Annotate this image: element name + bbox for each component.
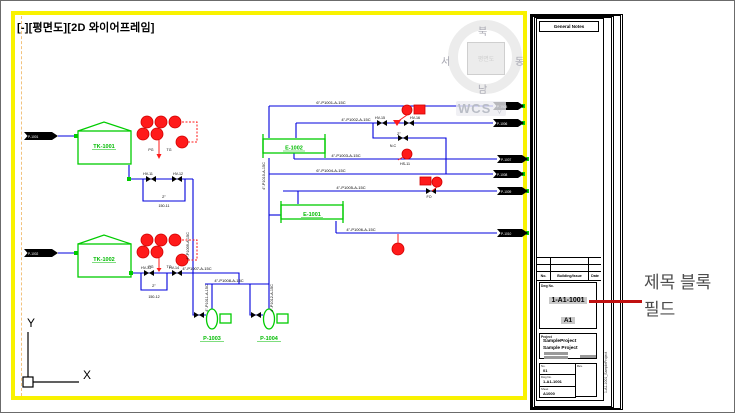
viewcube-north[interactable]: 북: [478, 23, 487, 38]
connector-out-5: P-1009: [501, 190, 512, 194]
pipe-tag: 4"-P1008-A-15C: [214, 278, 243, 283]
misc-tags: 150-11 150-12 FO N.C HS-11: [148, 144, 431, 299]
inst-tag: TG: [167, 148, 172, 152]
pipe-tag: 6"-P1001-A-15C: [316, 100, 345, 105]
inst-tag: PG: [148, 148, 153, 152]
instrument-symbols[interactable]: [137, 105, 442, 266]
pipe-tag: 4"-P1003-A-15C: [331, 153, 360, 158]
vessel2-tag: E-1001: [303, 212, 321, 218]
tank1-tag: TK-1001: [93, 144, 114, 150]
inst-tag: PG: [148, 265, 153, 269]
misc-tag: N.C: [390, 144, 397, 148]
size-tag: 2": [162, 194, 166, 199]
annotation-text: 제목 블록 필드: [644, 269, 711, 323]
connector-in-1: P-1001: [28, 135, 39, 139]
pipe-tag: 4"-P1002-A-15C: [341, 117, 370, 122]
viewcube-south[interactable]: 남: [478, 81, 487, 96]
annotation-line-1: 제목 블록: [644, 269, 711, 296]
ucs-y-label: Y: [27, 316, 35, 330]
pipe-tags: 6"-P1001-A-15C 4"-P1002-A-15C 4"-P1003-A…: [182, 100, 375, 312]
pipe-tag: 6"-P1004-A-15C: [316, 168, 345, 173]
pipe-tag: 4"-P1006-A-15C: [346, 227, 375, 232]
pipe-tag: 4"-P1005-A-15C: [336, 185, 365, 190]
valve-tag: HV-11: [143, 172, 153, 176]
viewport-controls-label[interactable]: [-][평면도][2D 와이어프레임]: [17, 19, 155, 35]
vessel1-tag: E-1002: [285, 146, 303, 152]
annotation-leader-line: [589, 300, 642, 303]
viewcube-west[interactable]: 서: [441, 53, 450, 68]
size-tags: 2" 2" 2": [152, 131, 401, 288]
size-tag: 2": [152, 283, 156, 288]
piping-network[interactable]: [58, 106, 497, 315]
wcs-dropdown-icon[interactable]: ▽: [496, 105, 504, 115]
pipe-tag: 4"-P1010-A-15C: [262, 162, 266, 190]
connector-out-3: P-1007: [501, 158, 512, 162]
size-tag: 2": [397, 131, 401, 136]
viewcube-east[interactable]: 동: [515, 53, 524, 68]
application-window: [-][평면도][2D 와이어프레임] General Notes No. Bu…: [0, 0, 735, 413]
misc-tag: 150-12: [148, 295, 159, 299]
offpage-connectors[interactable]: P-1001 P-1002 P-1005 P-1006 P-1007 P-100…: [24, 102, 528, 257]
pipe-tag: 4"-P1011-A-15C: [205, 284, 209, 312]
equipment-shapes[interactable]: [78, 122, 343, 329]
ucs-x-label: X: [83, 368, 91, 382]
valve-tag: HV-12: [173, 172, 183, 176]
pump2-tag: P-1004: [260, 336, 279, 342]
pipe-tag: 4"-P1012-A-15C: [270, 284, 274, 312]
pump1-tag: P-1003: [203, 336, 221, 342]
ucs-icon: [23, 332, 79, 387]
wcs-label: WCS: [458, 101, 491, 116]
connector-out-6: P-1010: [501, 232, 512, 236]
misc-tag: 150-11: [159, 204, 170, 208]
tank2-tag: TK-1002: [93, 257, 114, 263]
viewcube-face[interactable]: 평면도: [467, 42, 505, 75]
pipe-tag: 4"-P1007-A-15C: [182, 266, 211, 271]
misc-tag: HS-11: [400, 162, 410, 166]
valve-tag: HV-16: [410, 116, 420, 120]
pipe-tag: 4"-P1009-A-15C: [186, 232, 190, 260]
connector-in-2: P-1002: [28, 252, 39, 256]
connector-out-2: P-1006: [497, 122, 508, 126]
valve-tag: HV-15: [375, 116, 385, 120]
inst-tag: TG: [167, 265, 172, 269]
misc-tag: FO: [427, 195, 432, 199]
annotation-line-2: 필드: [644, 296, 711, 323]
cad-drawing[interactable]: TK-1001 TK-1002 E-1002 E-1001 P-1003 P-1…: [1, 1, 735, 413]
wcs-menu[interactable]: WCS ▽: [456, 101, 506, 116]
connector-out-4: P-1008: [497, 173, 508, 177]
